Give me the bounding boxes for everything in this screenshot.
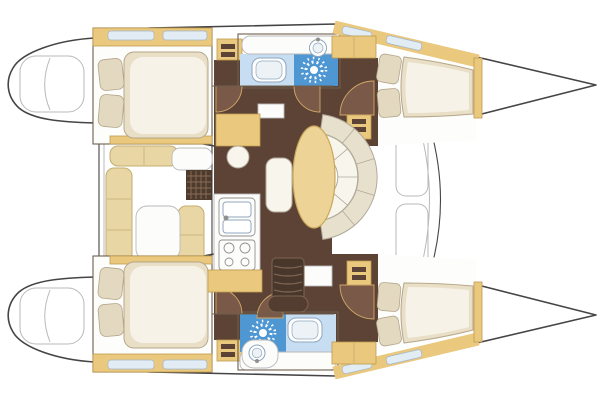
salon-entry-stairs <box>268 258 308 312</box>
forward-bulkhead <box>474 58 482 118</box>
faucet-dot <box>255 359 259 363</box>
vanity-counter <box>242 36 344 54</box>
catamaran-floor-plan: Catamaran sailboat interior floor plan, … <box>0 0 600 400</box>
port-aft-cabin <box>93 28 212 144</box>
step-glyph <box>221 344 235 349</box>
salon-bench-seat <box>266 158 292 212</box>
pillow <box>98 303 125 337</box>
hull-window <box>108 360 154 369</box>
step-glyph <box>352 267 366 272</box>
cockpit-table <box>136 206 180 260</box>
bathroom-sink-bowl <box>252 348 262 358</box>
salon-dining-table <box>293 126 335 228</box>
pillow <box>377 282 401 312</box>
toilet-bowl <box>256 61 282 79</box>
hull-window <box>163 31 207 40</box>
step-glyph <box>221 44 235 49</box>
sink-basin <box>223 202 251 217</box>
cabin-entry-steps <box>347 261 371 287</box>
pillow <box>377 88 401 118</box>
port-head <box>238 34 344 88</box>
bed-duvet <box>130 266 206 343</box>
stove-burner <box>240 243 250 253</box>
galley-faucet <box>224 216 229 221</box>
stove-burner <box>225 258 233 266</box>
pillow <box>376 315 403 346</box>
cockpit-bench-left <box>106 168 132 262</box>
step-glyph <box>221 52 235 57</box>
stair-landing <box>268 296 308 312</box>
pillow <box>98 94 125 128</box>
pillow <box>376 53 403 84</box>
step-glyph <box>221 352 235 357</box>
pillow <box>97 267 124 300</box>
nav-station-desk <box>216 114 260 146</box>
stove-burner <box>241 258 249 266</box>
corridor-shelf <box>258 104 284 118</box>
nav-station-stool <box>227 146 249 168</box>
sun-center <box>310 66 318 74</box>
galley <box>208 194 262 292</box>
starboard-head <box>238 312 338 370</box>
toilet-bowl <box>292 321 318 339</box>
galley-stove <box>219 240 255 270</box>
galley-lower-cabinet <box>208 270 262 292</box>
hull-window <box>108 31 154 40</box>
deck-grate <box>186 170 212 200</box>
sink-basin <box>223 220 251 233</box>
step-glyph <box>352 275 366 280</box>
pillow <box>97 58 124 91</box>
faucet-dot <box>316 38 320 42</box>
corridor-desk <box>300 266 332 286</box>
forward-bulkhead <box>474 282 482 342</box>
starboard-aft-cabin <box>93 256 212 372</box>
helm-seat <box>172 148 212 170</box>
hull-window <box>163 360 207 369</box>
floor-plan-canvas: Catamaran sailboat interior floor plan, … <box>0 0 600 400</box>
step-glyph <box>352 119 366 124</box>
bed-duvet <box>130 57 206 134</box>
sun-center <box>259 329 267 337</box>
bathroom-sink-bowl <box>313 43 323 53</box>
stove-burner <box>224 243 234 253</box>
